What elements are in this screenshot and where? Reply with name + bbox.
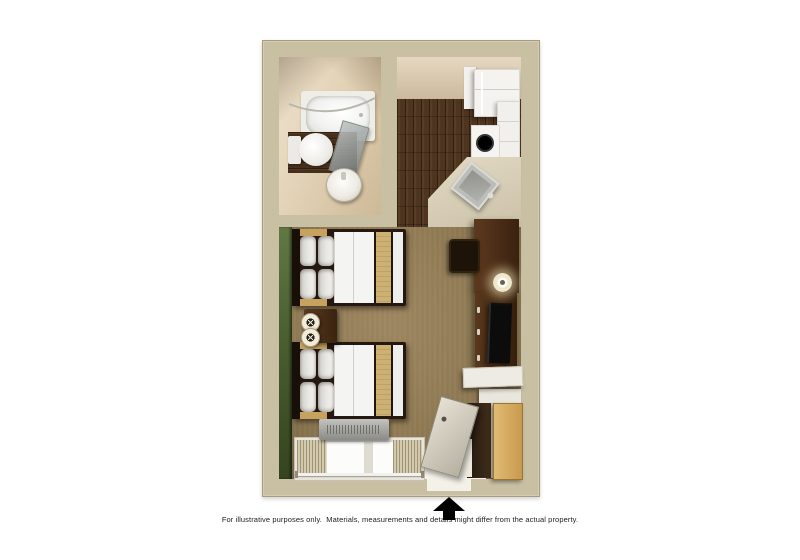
bed-runner [376, 232, 391, 303]
desk-chair [449, 239, 480, 273]
curtain-rod [295, 473, 424, 476]
headboard [292, 342, 300, 419]
floor-plan [262, 40, 540, 497]
table-lamp-icon [301, 328, 320, 347]
duvet [334, 232, 374, 303]
pillows [300, 349, 334, 412]
window-glass [326, 441, 366, 475]
wall-shelf [463, 366, 524, 388]
entrance-arrow-icon [433, 497, 465, 511]
toilet-icon [299, 133, 333, 166]
bed-rail [300, 229, 327, 236]
window-with-curtains [294, 437, 425, 481]
disclaimer-text: For illustrative purposes only. Material… [0, 515, 800, 524]
headboard [292, 229, 300, 306]
window-mullion [364, 441, 372, 473]
pedestal-sink-icon [326, 168, 362, 202]
entrance-arrow-stem [443, 511, 455, 520]
curtain-right [393, 440, 422, 473]
bathtub-drain [359, 113, 363, 117]
bed-2 [292, 342, 406, 419]
bed-rail [300, 412, 327, 419]
bed-1 [292, 229, 406, 306]
bed-foot [393, 345, 403, 416]
pillows [300, 236, 334, 299]
curtain-left [297, 440, 326, 473]
ac-unit [319, 419, 389, 440]
closet-shelf [479, 389, 521, 403]
stove-burner-icon [476, 134, 494, 152]
entry-opening [427, 478, 471, 491]
tv-icon [487, 303, 512, 364]
floor-plan-page: For illustrative purposes only. Material… [0, 0, 800, 560]
green-accent-wall [279, 227, 292, 479]
closet-door [493, 403, 523, 480]
bed-rail [300, 299, 327, 306]
bed-runner [376, 345, 391, 416]
window-glass [372, 441, 394, 475]
desk-lamp-icon [493, 273, 512, 292]
bed-foot [393, 232, 403, 303]
duvet [334, 345, 374, 416]
